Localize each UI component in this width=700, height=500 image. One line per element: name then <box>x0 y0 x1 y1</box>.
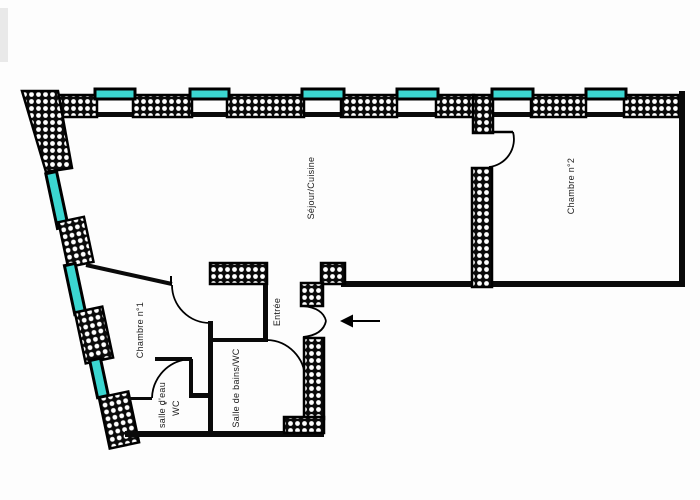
floor-plan: Séjour/Cuisine Chambre n°2 Chambre n°1 E… <box>0 0 700 500</box>
room-label-sejour-cuisine: Séjour/Cuisine <box>306 157 316 220</box>
window <box>90 358 109 397</box>
wall-segment <box>304 338 324 419</box>
room-label-salle-de-bains: Salle de bains/WC <box>231 348 241 427</box>
wall <box>189 359 193 397</box>
wall-segment <box>341 95 397 117</box>
wall <box>189 393 213 398</box>
wall-segment <box>284 417 324 433</box>
top-wall <box>55 89 684 133</box>
wall-pier <box>473 95 493 133</box>
door-swing <box>267 340 305 379</box>
room-label-wc-note: * <box>163 401 172 404</box>
wall-segment <box>210 263 267 284</box>
chambre2-partition <box>472 132 514 287</box>
window <box>492 89 533 99</box>
room-label-chambre-2: Chambre n°2 <box>566 158 576 214</box>
wall <box>86 265 172 284</box>
bottom-wall-sejour <box>341 281 684 287</box>
window <box>397 89 438 99</box>
right-wall <box>679 91 685 287</box>
entry-door-assembly <box>284 263 345 433</box>
window <box>95 89 135 99</box>
window <box>190 89 229 99</box>
wall <box>155 357 192 361</box>
door-swing <box>303 321 326 337</box>
door-swing <box>489 132 514 167</box>
wall-segment <box>133 95 192 117</box>
scan-artifact <box>0 8 8 62</box>
room-label-entree: Entrée <box>272 298 282 326</box>
door-swing <box>303 306 326 321</box>
wall-segment <box>624 95 679 117</box>
wall <box>211 338 268 342</box>
wall-segment <box>436 95 474 117</box>
wall-segment <box>227 95 304 117</box>
room-label-chambre-1: Chambre n°1 <box>135 302 145 358</box>
wall-pier <box>321 263 345 284</box>
window <box>64 263 85 314</box>
chambre1-partition <box>86 263 267 323</box>
window <box>302 89 344 99</box>
wall-pier <box>301 283 323 306</box>
wall-segment <box>99 391 139 448</box>
door-swing <box>172 285 210 323</box>
wall-segment <box>75 307 113 364</box>
wall-segment <box>59 217 94 267</box>
entrance-arrow-icon <box>340 315 380 328</box>
wall <box>263 285 268 341</box>
left-wall <box>22 91 139 449</box>
window <box>586 89 626 99</box>
wall <box>129 397 152 400</box>
wall-segment <box>531 95 586 117</box>
wall-segment <box>472 168 492 287</box>
room-label-wc: WC <box>171 400 181 416</box>
floor-plan-drawing: Séjour/Cuisine Chambre n°2 Chambre n°1 E… <box>0 0 700 500</box>
